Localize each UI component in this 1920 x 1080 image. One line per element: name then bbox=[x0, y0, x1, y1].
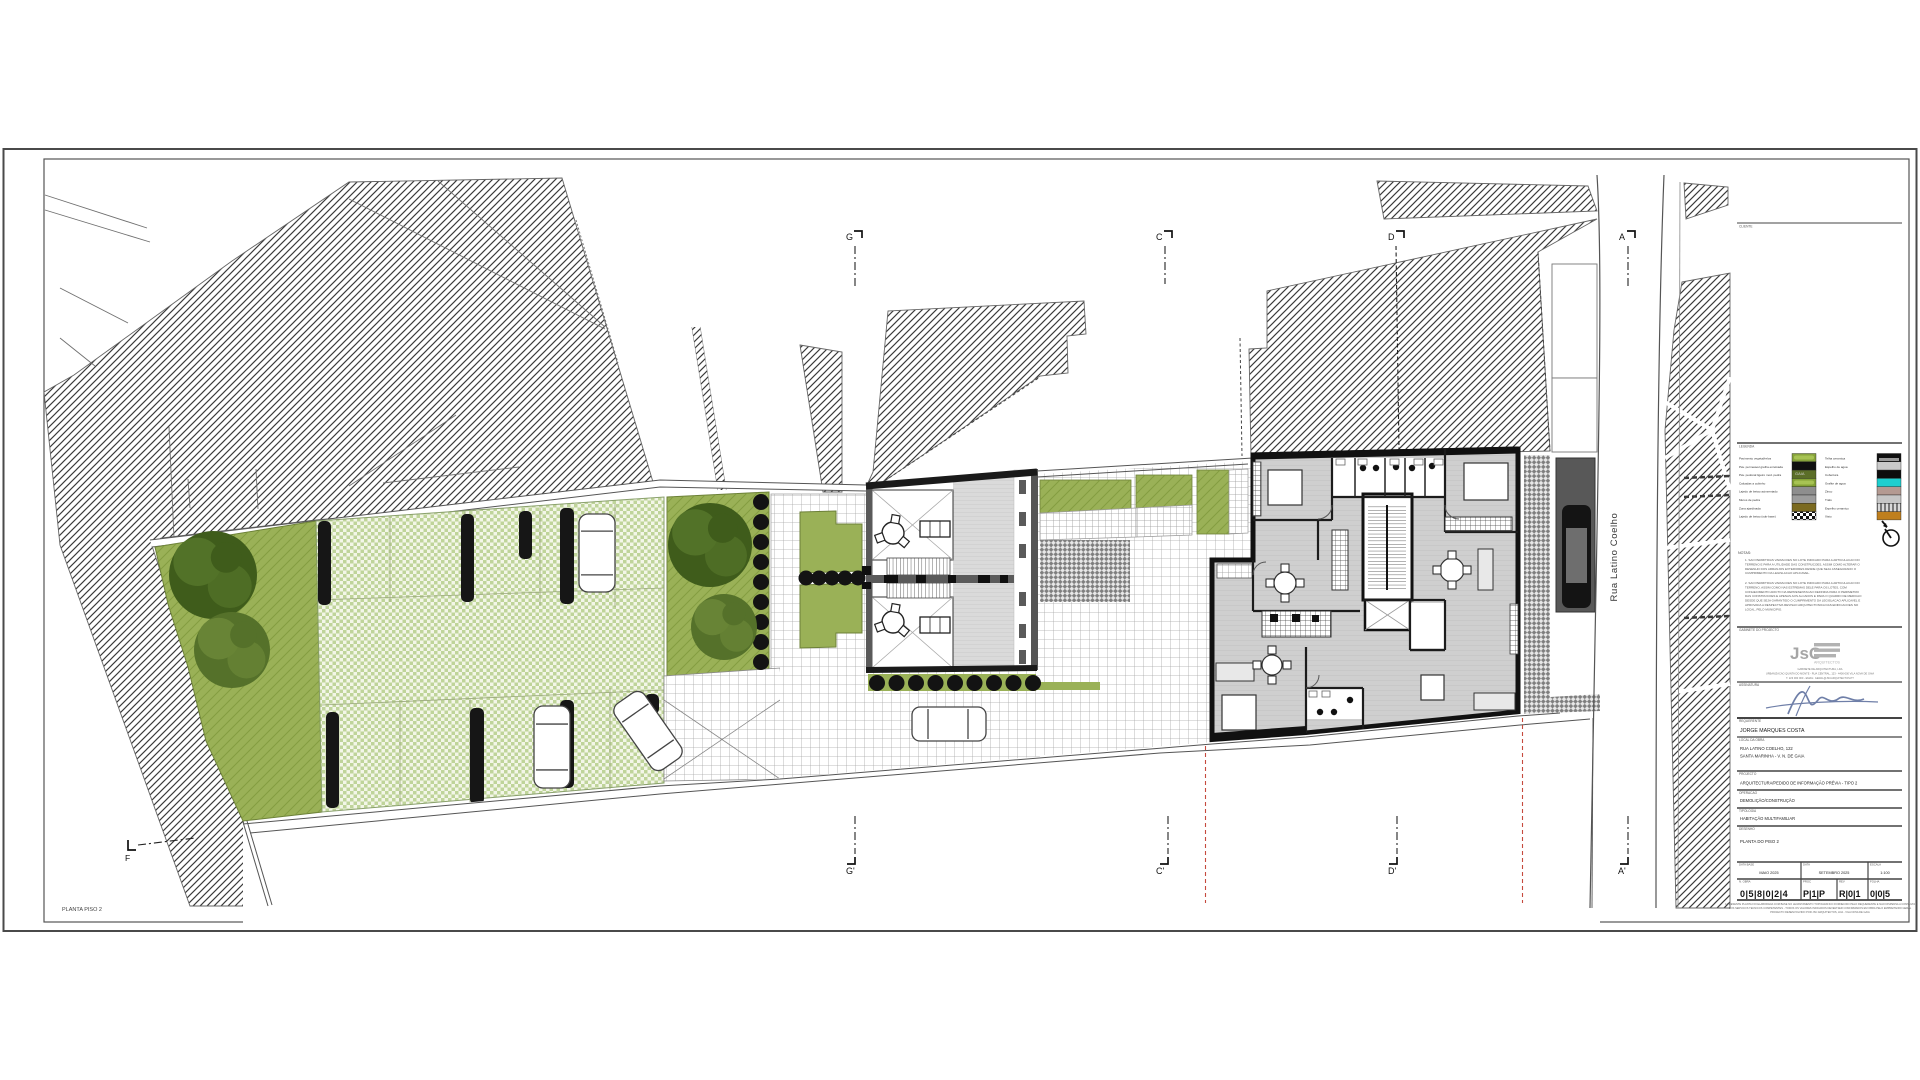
svg-text:PLANTA PISO 2: PLANTA PISO 2 bbox=[62, 907, 102, 913]
svg-text:REV: REV bbox=[1839, 880, 1845, 884]
svg-text:ARQUITECTURA/PEDIDO DE INFORMA: ARQUITECTURA/PEDIDO DE INFORMAÇÃO PRÉVIA… bbox=[1740, 781, 1858, 786]
svg-text:2. SAO PERMITIDAS VARIACOES NO: 2. SAO PERMITIDAS VARIACOES NO LOTE INDI… bbox=[1745, 581, 1861, 585]
svg-text:Pavimento vegetal/relva: Pavimento vegetal/relva bbox=[1739, 457, 1771, 461]
svg-text:DESENHO: DESENHO bbox=[1739, 827, 1755, 831]
svg-text:ESCALA: ESCALA bbox=[1870, 863, 1881, 867]
svg-text:JORGE MARQUES COSTA: JORGE MARQUES COSTA bbox=[1740, 728, 1805, 734]
svg-text:DESDE QUE SEJA GARANTIDO O CUM: DESDE QUE SEJA GARANTIDO O CUMPRIMENTO D… bbox=[1745, 599, 1860, 603]
svg-text:Rua Latino Coelho: Rua Latino Coelho bbox=[1609, 513, 1620, 602]
svg-text:Xisto: Xisto bbox=[1825, 515, 1832, 519]
svg-text:P|1|P: P|1|P bbox=[1803, 889, 1825, 899]
svg-text:REQUERENTE: REQUERENTE bbox=[1739, 719, 1761, 723]
svg-text:FOLHA: FOLHA bbox=[1870, 880, 1879, 884]
svg-text:LOCAL, PELO MUNICIPIO.: LOCAL, PELO MUNICIPIO. bbox=[1745, 607, 1782, 611]
svg-text:SETEMBRO 2025: SETEMBRO 2025 bbox=[1819, 871, 1850, 875]
svg-text:Lajedo de betao acinzentado: Lajedo de betao acinzentado bbox=[1739, 490, 1778, 494]
svg-text:Zona ajardinada: Zona ajardinada bbox=[1739, 506, 1761, 510]
svg-text:A: A bbox=[1619, 232, 1625, 242]
svg-text:TERRENO E PARA A UTILIDADE DAS: TERRENO E PARA A UTILIDADE DAS CONSTRUCO… bbox=[1745, 562, 1860, 566]
svg-text:DATA BASE: DATA BASE bbox=[1739, 863, 1754, 867]
svg-text:CONHECIMENTO ADICTO NA REPRESE: CONHECIMENTO ADICTO NA REPRESENTACAO DEF… bbox=[1745, 590, 1860, 594]
svg-text:GABINETE DO PROJECTO: GABINETE DO PROJECTO bbox=[1739, 628, 1779, 632]
svg-text:RUA LATINO COELHO, 122: RUA LATINO COELHO, 122 bbox=[1740, 746, 1793, 751]
svg-text:TERRENO, ASSIM COMO NAS ESTREM: TERRENO, ASSIM COMO NAS ESTREMAS DELE PA… bbox=[1745, 585, 1847, 589]
svg-text:1:100: 1:100 bbox=[1880, 871, 1890, 875]
svg-text:PLANTA DO PISO 2: PLANTA DO PISO 2 bbox=[1740, 839, 1779, 844]
svg-text:DATA: DATA bbox=[1803, 863, 1810, 867]
svg-text:DEMOLIÇÃO/CONSTRUÇÃO: DEMOLIÇÃO/CONSTRUÇÃO bbox=[1740, 798, 1795, 803]
svg-text:DAS CONSTRUCOES E APENAS AOS A: DAS CONSTRUCOES E APENAS AOS ALCADOS E P… bbox=[1745, 594, 1862, 598]
svg-text:Telha ceramica: Telha ceramica bbox=[1825, 457, 1846, 461]
svg-text:D: D bbox=[1388, 232, 1395, 242]
svg-text:0|0|5: 0|0|5 bbox=[1870, 889, 1890, 899]
svg-text:OPERACAO: OPERACAO bbox=[1739, 791, 1758, 795]
svg-text:Muros de pedra: Muros de pedra bbox=[1739, 498, 1760, 502]
svg-text:ASSINATURA: ASSINATURA bbox=[1739, 683, 1760, 687]
svg-text:Pav. pedonal ligeiro mod. pedr: Pav. pedonal ligeiro mod. pedra bbox=[1739, 473, 1781, 477]
svg-text:G: G bbox=[846, 232, 853, 242]
svg-text:A': A' bbox=[1618, 866, 1626, 876]
svg-text:N. OBRA: N. OBRA bbox=[1739, 880, 1751, 884]
svg-text:DOS SERVICOS TECNICOS COMPETEN: DOS SERVICOS TECNICOS COMPETENTES - TODO… bbox=[1729, 906, 1912, 910]
svg-text:G': G' bbox=[846, 866, 855, 876]
svg-text:0|5|8|0|2|4: 0|5|8|0|2|4 bbox=[1740, 889, 1788, 899]
svg-text:MAIO 2025: MAIO 2025 bbox=[1759, 871, 1778, 875]
svg-text:APROVADA A RESPECTIVA REVISAO: APROVADA A RESPECTIVA REVISAO ARQUITECTO… bbox=[1745, 603, 1859, 607]
svg-text:Espelho ceramico: Espelho ceramico bbox=[1825, 506, 1849, 510]
svg-text:Trafo: Trafo bbox=[1825, 498, 1832, 502]
svg-text:Cobertura: Cobertura bbox=[1825, 473, 1839, 477]
svg-text:Espelho de agua: Espelho de agua bbox=[1825, 465, 1848, 469]
svg-text:CUMPRIMENTO DA LEGISLACAO APLI: CUMPRIMENTO DA LEGISLACAO APLICAVEL. bbox=[1745, 571, 1810, 575]
svg-text:PROC: PROC bbox=[1803, 880, 1811, 884]
svg-text:NOTAS:: NOTAS: bbox=[1738, 551, 1751, 555]
svg-text:TIPOLOGIA: TIPOLOGIA bbox=[1739, 809, 1757, 813]
svg-text:Zinco: Zinco bbox=[1825, 490, 1833, 494]
svg-text:HABITAÇÃO MULTIFAMILIAR: HABITAÇÃO MULTIFAMILIAR bbox=[1740, 816, 1795, 821]
svg-text:GAIA: GAIA bbox=[1795, 471, 1805, 476]
svg-text:1. SAO PERMITIDAS VARIACOES NO: 1. SAO PERMITIDAS VARIACOES NO LOTE INDI… bbox=[1745, 558, 1861, 562]
svg-text:ARQUITECTOS: ARQUITECTOS bbox=[1814, 661, 1840, 665]
svg-text:PROJECTO: PROJECTO bbox=[1739, 772, 1757, 776]
svg-text:A PRESENTE PLANTA FOI ELABORAD: A PRESENTE PLANTA FOI ELABORADA COM BASE… bbox=[1725, 902, 1916, 906]
svg-text:CLIENTE: CLIENTE bbox=[1739, 225, 1752, 229]
svg-text:LOCAL DA OBRA: LOCAL DA OBRA bbox=[1739, 738, 1765, 742]
svg-text:LEGENDA: LEGENDA bbox=[1739, 445, 1755, 449]
svg-text:SANTA MARINHA - V. N. DE GAIA: SANTA MARINHA - V. N. DE GAIA bbox=[1740, 754, 1805, 759]
svg-text:DESENHO DOS ARRANJOS EXTERIORE: DESENHO DOS ARRANJOS EXTERIORES DESDE QU… bbox=[1745, 567, 1857, 571]
svg-text:Grafite de agua: Grafite de agua bbox=[1825, 481, 1846, 485]
svg-text:C': C' bbox=[1156, 866, 1164, 876]
svg-text:T. 223 000 000 - EMAIL: GERAL@: T. 223 000 000 - EMAIL: GERAL@JSCARQUITE… bbox=[1786, 676, 1854, 680]
svg-text:GABINETE DE ARQUITECTURA, LDA: GABINETE DE ARQUITECTURA, LDA bbox=[1798, 667, 1843, 671]
svg-text:C: C bbox=[1156, 232, 1163, 242]
svg-text:PROJECTO DESENVOLVIDO POR JSC: PROJECTO DESENVOLVIDO POR JSC ARQUITECTO… bbox=[1770, 910, 1870, 914]
svg-text:Lajedo de betao (sub-base): Lajedo de betao (sub-base) bbox=[1739, 515, 1776, 519]
svg-text:R|0|1: R|0|1 bbox=[1839, 889, 1861, 899]
svg-text:URBANIZACAO QUINTA DO MONTE -: URBANIZACAO QUINTA DO MONTE - RUA CENTRA… bbox=[1766, 672, 1875, 676]
svg-text:Pav. permeavel grelha enrelvad: Pav. permeavel grelha enrelvada bbox=[1739, 465, 1783, 469]
svg-text:Calcadas a cubinho: Calcadas a cubinho bbox=[1739, 481, 1766, 485]
svg-text:D': D' bbox=[1388, 866, 1396, 876]
svg-text:F: F bbox=[125, 853, 130, 863]
